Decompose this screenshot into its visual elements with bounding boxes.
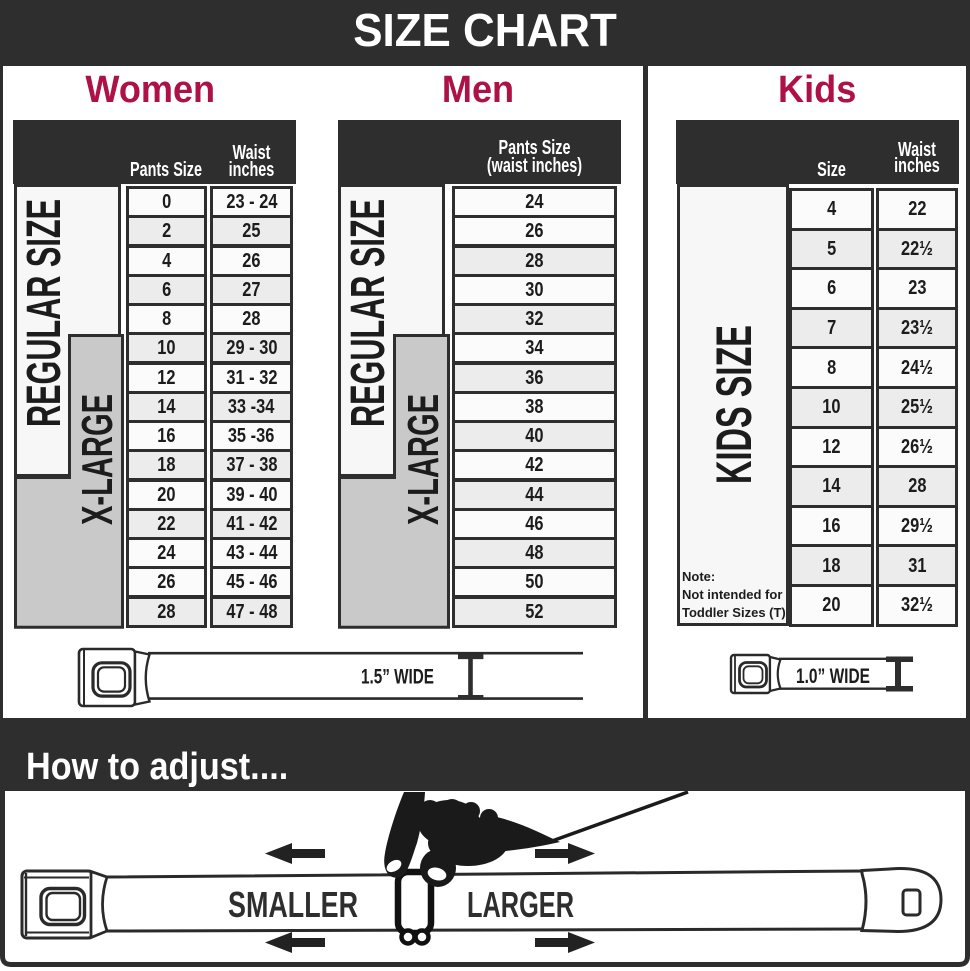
svg-text:REGULAR SIZE: REGULAR SIZE — [342, 199, 395, 427]
svg-text:X-LARGE: X-LARGE — [399, 394, 448, 525]
svg-text:LARGER: LARGER — [467, 884, 574, 925]
svg-text:KIDS SIZE: KIDS SIZE — [706, 325, 762, 484]
svg-text:1.0” WIDE: 1.0” WIDE — [796, 665, 870, 688]
svg-text:SMALLER: SMALLER — [228, 884, 358, 925]
svg-text:X-LARGE: X-LARGE — [73, 394, 122, 525]
svg-text:1.5” WIDE: 1.5” WIDE — [361, 666, 434, 689]
svg-text:REGULAR SIZE: REGULAR SIZE — [18, 199, 71, 427]
